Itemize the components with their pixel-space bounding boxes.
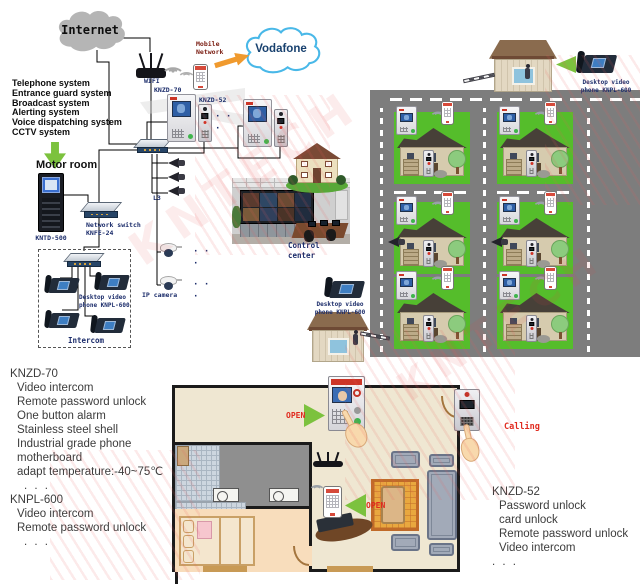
smartphone-icon: [544, 266, 557, 290]
washer-icon: [213, 488, 239, 502]
window: [301, 172, 308, 178]
road-dash: [390, 98, 640, 101]
tree-icon: [448, 315, 466, 339]
smartphone-icon: [441, 191, 454, 215]
product-feature: Remote password unlock: [492, 527, 638, 541]
router-icon: [313, 451, 343, 467]
horn-speaker-icon: [388, 236, 405, 248]
video-wall: [240, 190, 314, 224]
control-center-label: Control center: [288, 241, 348, 261]
horn-speaker-icon: [168, 171, 185, 183]
rock-icon: [434, 170, 447, 178]
product-model: KNZD-70: [10, 367, 192, 381]
desktop-phone-label: Desktop video phone KNPL-600: [574, 79, 638, 95]
intercom-label: Intercom: [63, 336, 109, 346]
desktop-phone-label: Desktop video phone KNPL-600: [79, 294, 133, 310]
door-sill: [327, 566, 373, 572]
window: [335, 190, 348, 220]
plant-icon: [232, 206, 241, 228]
product-feature: Password unlock: [492, 499, 638, 513]
rock-icon: [537, 170, 550, 178]
tree-icon: [551, 315, 569, 339]
horn-speaker-icon: [491, 236, 508, 248]
product-feature: Remote password unlock: [10, 521, 170, 535]
desktop-video-phone-icon: [325, 274, 363, 302]
window: [325, 172, 332, 178]
product-model: KNPL-600: [10, 493, 170, 507]
product-feature: Video intercom: [10, 381, 192, 395]
product-knzd70: KNZD-70 Video intercom Remote password u…: [10, 367, 192, 493]
window: [325, 161, 332, 167]
product-feature: Video intercom: [492, 541, 638, 555]
house-door: [313, 168, 321, 183]
product-feature: Video intercom: [10, 507, 170, 521]
product-feature: Stainless steel shell: [10, 423, 192, 437]
wifi-label: WIFI: [144, 77, 174, 85]
product-model: KNZD-52: [492, 485, 638, 499]
door-sill: [203, 566, 247, 572]
vodafone-cloud: Vodafone: [239, 24, 323, 74]
desktop-video-phone-icon: [577, 48, 615, 78]
wall: [309, 566, 312, 572]
video-intercom-panel-icon: [167, 94, 196, 142]
switch-icon: [67, 253, 101, 268]
wall: [309, 442, 312, 546]
network-switch-icon: [84, 202, 118, 219]
internet-cloud: Internet: [52, 6, 128, 54]
smartphone-icon: [441, 101, 454, 125]
sink-icon: [269, 488, 299, 502]
monitor-icon: [332, 220, 340, 226]
desktop-video-phone-icon: [95, 269, 128, 294]
l3-label: L3: [153, 194, 173, 202]
road-dash: [483, 108, 486, 352]
switch-icon: [137, 139, 168, 154]
product-feature: adapt temperature:-40~75℃: [10, 465, 192, 479]
map-house-block: [497, 277, 573, 349]
internet-label: Internet: [52, 23, 128, 37]
vodafone-label: Vodafone: [239, 43, 323, 55]
horn-speaker-icon: [168, 157, 185, 169]
person-icon: [524, 64, 531, 79]
mobile-network-label: Mobile Network: [196, 40, 232, 57]
smartphone-icon: [323, 486, 342, 518]
guard-house-icon: [489, 40, 557, 92]
bush-icon: [336, 175, 346, 185]
product-knpl600: KNPL-600 Video intercom Remote password …: [10, 493, 170, 549]
building-icon: [286, 141, 348, 193]
knzd70-label: KNZD-70: [154, 86, 194, 94]
systems-list: Telephone system Entrance guard system B…: [12, 79, 122, 138]
guard-house-icon: [307, 312, 369, 362]
smartphone-icon: [544, 101, 557, 125]
house-roof: [291, 143, 343, 159]
monitor-icon: [308, 221, 316, 227]
bush-icon: [288, 175, 298, 185]
ellipsis: · · ·: [215, 112, 239, 135]
road-dash: [380, 108, 383, 352]
rock-icon: [537, 335, 550, 343]
smartphone-icon: [544, 191, 557, 215]
open-label: OPEN: [366, 501, 385, 510]
tree-icon: [551, 150, 569, 174]
desktop-video-phone-icon: [45, 272, 78, 297]
product-feature: One button alarm: [10, 409, 192, 423]
door-station-icon: [423, 150, 434, 177]
product-more: . . .: [10, 479, 192, 493]
smartphone-icon: [193, 64, 208, 90]
calling-label: Calling: [504, 422, 540, 432]
system-diagram: Internet WIFI Mobile Network Vodafone Te…: [0, 0, 640, 584]
server-label: KNTD-500: [27, 234, 75, 242]
map-house-block: [394, 277, 470, 349]
map-house-block: [497, 112, 573, 184]
tree-icon: [448, 150, 466, 174]
product-knzd52: KNZD-52 Password unlock card unlock Remo…: [492, 485, 638, 569]
motor-room-label: Motor room: [36, 159, 97, 171]
monitor-icon: [320, 220, 328, 226]
door-station-icon: [526, 315, 537, 342]
product-more: . . .: [10, 535, 170, 549]
server-icon: [38, 173, 64, 232]
ip-camera-icon: [160, 243, 182, 259]
door-station-icon: [526, 150, 537, 177]
chair-icon: [326, 229, 336, 241]
door-station-icon: [526, 240, 537, 267]
product-feature: Remote password unlock: [10, 395, 192, 409]
product-more: . . .: [492, 555, 638, 569]
side-table-icon: [429, 543, 454, 556]
ellipsis: · · ·: [193, 247, 217, 270]
system-item: CCTV system: [12, 128, 122, 138]
rock-icon: [434, 335, 447, 343]
armchair-icon: [391, 451, 420, 468]
product-feature: Industrial grade phone motherboard: [10, 437, 192, 465]
intercom-group-box: Desktop video phone KNPL-600 Intercom: [38, 249, 131, 348]
window: [301, 161, 308, 167]
desktop-video-phone-icon: [45, 307, 78, 332]
ip-camera-label: IP camera: [142, 291, 186, 299]
sofa-icon: [427, 470, 457, 540]
desktop-phone-label: Desktop video phone KNPL-600: [308, 301, 372, 317]
smartphone-icon: [441, 266, 454, 290]
video-intercom-panel-icon: [243, 99, 272, 147]
door-station-icon: [198, 104, 212, 142]
bed-icon: [179, 516, 255, 566]
product-feature: card unlock: [492, 513, 638, 527]
desktop-video-phone-icon: [91, 312, 124, 337]
door-station-icon: [423, 315, 434, 342]
map-house-block: [394, 112, 470, 184]
knzd52-label: KNZD-52: [199, 96, 239, 104]
person-icon: [352, 330, 359, 345]
ip-camera-icon: [160, 276, 182, 292]
door-station-icon: [423, 240, 434, 267]
open-label: OPEN: [286, 411, 305, 420]
ellipsis: · · ·: [193, 280, 217, 303]
road-dash: [587, 108, 590, 352]
armchair-icon: [391, 534, 420, 551]
network-switch-label: Network switch KNFE-24: [86, 221, 144, 238]
tree-icon: [448, 240, 466, 264]
map-house-block: [497, 202, 573, 274]
side-table-icon: [429, 454, 454, 467]
map-house-block: [394, 202, 470, 274]
tree-icon: [551, 240, 569, 264]
